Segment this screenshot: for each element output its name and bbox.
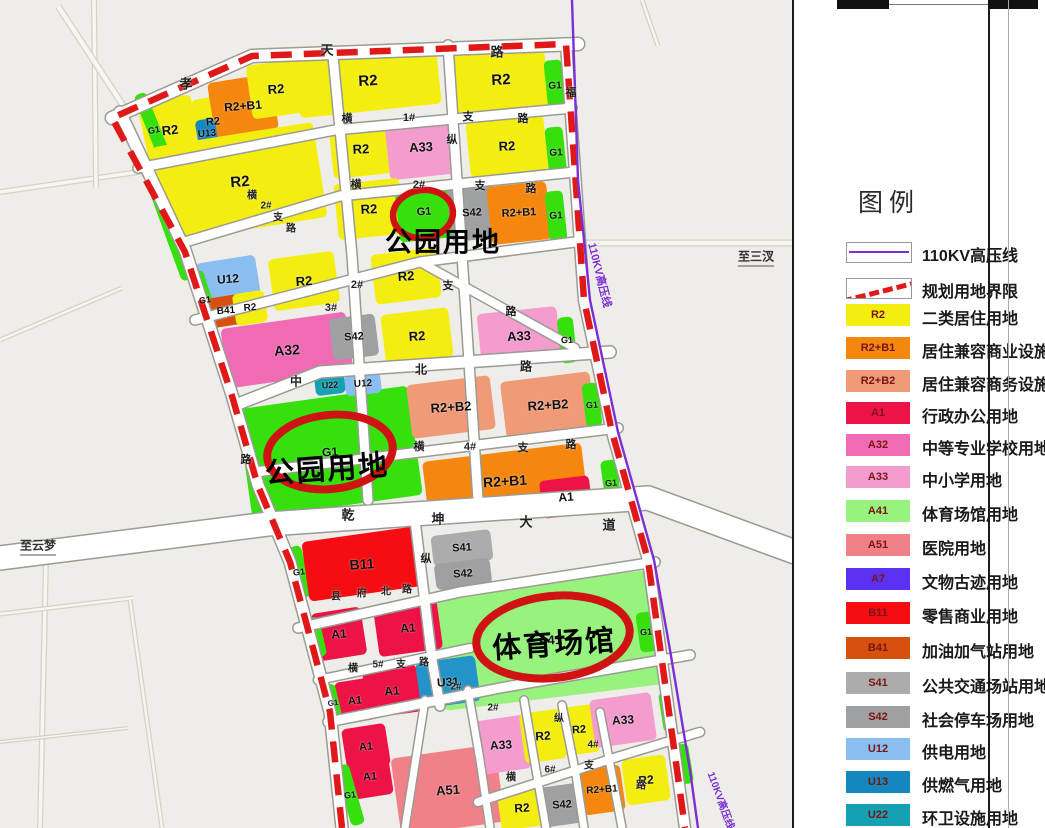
parcel-label: G1 — [343, 789, 356, 801]
sheet-border-line — [1008, 0, 1009, 828]
legend-item-label: 规划用地界限 — [922, 278, 1018, 302]
road-label: 孝 — [179, 74, 192, 93]
parcel-label: R2 — [360, 201, 377, 217]
road-label: 支 — [273, 209, 283, 224]
legend-item-label: 加油加气站用地 — [922, 638, 1034, 662]
parcel-label: A1 — [384, 683, 400, 698]
legend-item: A33中小学用地 — [794, 466, 988, 490]
parcel-label: R2 — [535, 728, 551, 743]
road-label: 横 — [342, 110, 353, 126]
road-label: 2# — [413, 179, 425, 191]
legend-swatch: B11 — [846, 602, 910, 624]
legend-swatch: A51 — [846, 534, 910, 556]
parcel-label: R2 — [295, 273, 313, 289]
legend-item: A32中等专业学校用地 — [794, 434, 988, 458]
parcel-label: R2 — [243, 302, 257, 314]
legend-item-label: 居住兼容商业设施用地 — [922, 338, 1045, 362]
road-label: 支 — [518, 439, 529, 455]
road-label: 大 — [519, 512, 532, 531]
legend-item-label: 二类居住用地 — [922, 305, 1018, 329]
parcel-label: G1 — [549, 147, 563, 159]
road-label: 支 — [475, 177, 486, 193]
legend-swatch: S41 — [846, 672, 910, 694]
parcel-label: G1 — [640, 627, 653, 638]
legend-item: 110KV高压线 — [794, 241, 988, 265]
road-label: 路 — [402, 581, 412, 596]
road-label: 2# — [450, 682, 461, 693]
parcel-label: S42 — [344, 330, 364, 343]
parcel-label: R2+B2 — [527, 396, 569, 413]
road-label: 横 — [348, 660, 358, 675]
parcel-label: A1 — [558, 490, 574, 505]
parcel-label: R2+B1 — [586, 783, 618, 796]
road-label: 横 — [506, 769, 516, 784]
legend-item: S41公共交通场站用地 — [794, 672, 988, 696]
parcel-label: A32 — [274, 341, 301, 359]
road-label: 2# — [260, 201, 271, 212]
road-label: 乾 — [341, 505, 354, 524]
road-label: 中 — [290, 373, 302, 390]
legend-swatch: A7 — [846, 568, 910, 590]
road-label: 路 — [566, 436, 577, 452]
road-label: 2# — [351, 279, 363, 291]
parcel-label: R2 — [408, 328, 426, 344]
legend-item-label: 供燃气用地 — [922, 772, 1002, 796]
direction-label: 至云梦 — [20, 537, 56, 556]
parcel-label: A1 — [331, 626, 347, 641]
parcel-label: R2 — [491, 71, 511, 89]
background-road — [130, 600, 162, 828]
road-label: 纵 — [447, 131, 458, 147]
legend-item: R2+B1居住兼容商业设施用地 — [794, 337, 988, 361]
parcel-label: G1 — [605, 478, 618, 489]
road-label: 北 — [381, 583, 391, 598]
legend-item-label: 中等专业学校用地 — [922, 435, 1045, 459]
road-label: 路 — [520, 358, 532, 375]
road-label: 福 — [566, 84, 577, 100]
legend-item: A41体育场馆用地 — [794, 500, 988, 524]
legend-item-label: 居住兼容商务设施用地 — [922, 371, 1045, 395]
road-label: 府 — [357, 585, 367, 600]
parcel-label: G1 — [549, 210, 563, 222]
road-label: 路 — [241, 451, 252, 467]
legend-swatch: U12 — [846, 738, 910, 760]
legend-swatch: U22 — [846, 804, 910, 826]
parcel-label: R2 — [352, 141, 369, 157]
boundary-swatch-icon — [846, 278, 912, 299]
road-label: 支 — [463, 108, 474, 124]
parcel-label: U12 — [216, 271, 239, 287]
road-label: 1# — [403, 112, 415, 124]
parcel-label: G1 — [561, 335, 574, 346]
parcel-label: S42 — [453, 567, 473, 580]
road-label: 6# — [544, 765, 555, 776]
scale-bar-segment — [988, 0, 1038, 9]
parcel-label: A1 — [359, 740, 374, 753]
background-road — [0, 170, 152, 192]
legend-swatch: R2+B2 — [846, 370, 910, 392]
road-label: 横 — [414, 438, 425, 454]
road-label: 横 — [351, 176, 362, 192]
road-label: 4# — [587, 740, 598, 751]
legend-item-label: 零售商业用地 — [922, 603, 1018, 627]
background-road — [0, 598, 133, 614]
road-label: 天 — [320, 40, 333, 59]
parcel-label: R2 — [498, 138, 515, 154]
road-label: 路 — [419, 654, 429, 669]
road-label: 纵 — [554, 710, 564, 725]
parcel-label: U12 — [354, 378, 373, 390]
legend-swatch: U13 — [846, 771, 910, 793]
legend-swatch: R2+B1 — [846, 337, 910, 359]
legend-item: R2二类居住用地 — [794, 304, 988, 328]
legend-item-label: 文物古迹用地 — [922, 569, 1018, 593]
zoning-map: R2R2R2+B1U13R2R2R2G1G1R2R2A33R2G1R2G1S42… — [0, 0, 793, 828]
parcel-label: S42 — [552, 798, 572, 811]
planning-map-page: R2R2R2+B1U13R2R2R2G1G1R2R2A33R2G1R2G1S42… — [0, 0, 1045, 828]
legend-item: U13供燃气用地 — [794, 771, 988, 795]
legend-item-label: 体育场馆用地 — [922, 501, 1018, 525]
legend-item-label: 供电用地 — [922, 739, 986, 763]
legend-item: B11零售商业用地 — [794, 602, 988, 626]
parcel-label: R2+B2 — [430, 398, 472, 415]
legend-item-label: 110KV高压线 — [922, 242, 1018, 266]
legend-item: A51医院用地 — [794, 534, 988, 558]
parcel-label: A33 — [612, 712, 635, 728]
road-label: 路 — [490, 42, 503, 61]
road-label: 路 — [518, 110, 529, 126]
road-label: 道 — [602, 515, 615, 534]
road-label: 2# — [487, 703, 498, 714]
road-label: 路 — [286, 220, 296, 235]
legend-item: A1行政办公用地 — [794, 402, 988, 426]
legend-item-label: 医院用地 — [922, 535, 986, 559]
parcel-label: G1 — [548, 80, 562, 92]
legend-swatch: B41 — [846, 637, 910, 659]
parcel-label: S41 — [452, 541, 472, 554]
zoning-map-canvas — [0, 0, 793, 828]
legend-item: S42社会停车场用地 — [794, 706, 988, 730]
road-label: 路 — [636, 777, 646, 792]
legend-item: A7文物古迹用地 — [794, 568, 988, 592]
parcel-label: B11 — [349, 555, 375, 573]
road-label: 支 — [396, 656, 406, 671]
legend-item: U12供电用地 — [794, 738, 988, 762]
legend-swatch: S42 — [846, 706, 910, 728]
parcel-label: G1 — [292, 566, 305, 577]
parcel-label: A33 — [507, 328, 532, 344]
parcel-label: U13 — [197, 128, 216, 141]
parcel-label: U22 — [321, 380, 338, 391]
parcel-label: R2 — [267, 81, 285, 97]
road-label: 4# — [464, 441, 476, 453]
background-road — [94, 0, 96, 188]
annotation-label: 公园用地 — [385, 221, 501, 260]
parcel-label: R2+B1 — [224, 98, 263, 115]
parcel-label: R2+B1 — [501, 206, 536, 220]
parcel-label: B41 — [216, 305, 235, 317]
parcel-label: G1 — [416, 206, 431, 219]
road-label: 北 — [415, 361, 427, 378]
scale-bar-icon — [0, 0, 1045, 10]
parcel-label: R2 — [514, 800, 530, 815]
parcel-label: R2 — [572, 724, 587, 737]
parcel-label: R2+B1 — [483, 472, 528, 491]
background-road — [0, 288, 122, 340]
legend-item-label: 环卫设施用地 — [922, 805, 1018, 828]
legend-item: 规划用地界限 — [794, 277, 988, 301]
road-label: 支 — [443, 277, 454, 293]
110kv-line-swatch-icon — [846, 242, 912, 263]
road-label: 5# — [372, 660, 383, 671]
parcel-label: R2 — [161, 122, 179, 139]
road-label: 路 — [506, 303, 517, 319]
legend-item: U22环卫设施用地 — [794, 804, 988, 828]
parcel-label: A1 — [348, 694, 363, 707]
parcel-label: G1 — [586, 400, 599, 411]
scale-bar-line — [889, 4, 988, 5]
scale-bar-segment — [837, 0, 889, 9]
road-label: 纵 — [421, 550, 432, 566]
legend-swatch: A33 — [846, 466, 910, 488]
road-label: 路 — [526, 180, 537, 196]
legend-item-label: 中小学用地 — [922, 467, 1002, 491]
parcel-label: S42 — [462, 206, 482, 219]
parcel-label: A51 — [436, 782, 461, 799]
legend-swatch: A41 — [846, 500, 910, 522]
parcel-label: R2 — [205, 115, 220, 128]
annotation-label: 公园用地 — [264, 442, 391, 493]
parcel-label: G1 — [327, 698, 339, 708]
legend-item-label: 行政办公用地 — [922, 403, 1018, 427]
road-label: 坤 — [431, 509, 444, 528]
road-label: 县 — [331, 588, 341, 603]
parcel-label: A1 — [400, 620, 416, 635]
road-label: 横 — [247, 187, 257, 202]
direction-label: 至三汊 — [738, 248, 774, 267]
parcel-label: R2 — [358, 72, 378, 90]
parcel-label: A33 — [409, 139, 434, 155]
annotation-label: 体育场馆 — [491, 617, 618, 668]
legend-title: 图例 — [858, 183, 920, 219]
legend-panel: 图例 110KV高压线规划用地界限R2二类居住用地R2+B1居住兼容商业设施用地… — [792, 0, 990, 828]
parcel-label: A1 — [363, 770, 378, 783]
parcel-label: G1 — [198, 294, 211, 306]
road-label: 支 — [584, 757, 594, 772]
road-label: 3# — [325, 302, 337, 314]
legend-swatch: R2 — [846, 304, 910, 326]
legend-item-label: 公共交通场站用地 — [922, 673, 1045, 697]
legend-item-label: 社会停车场用地 — [922, 707, 1034, 731]
parcel-label: A33 — [490, 737, 513, 753]
background-road — [0, 728, 128, 742]
legend-item: R2+B2居住兼容商务设施用地 — [794, 370, 988, 394]
legend-item: B41加油加气站用地 — [794, 637, 988, 661]
parcel-label: R2 — [397, 268, 415, 284]
legend-swatch: A32 — [846, 434, 910, 456]
legend-swatch: A1 — [846, 402, 910, 424]
